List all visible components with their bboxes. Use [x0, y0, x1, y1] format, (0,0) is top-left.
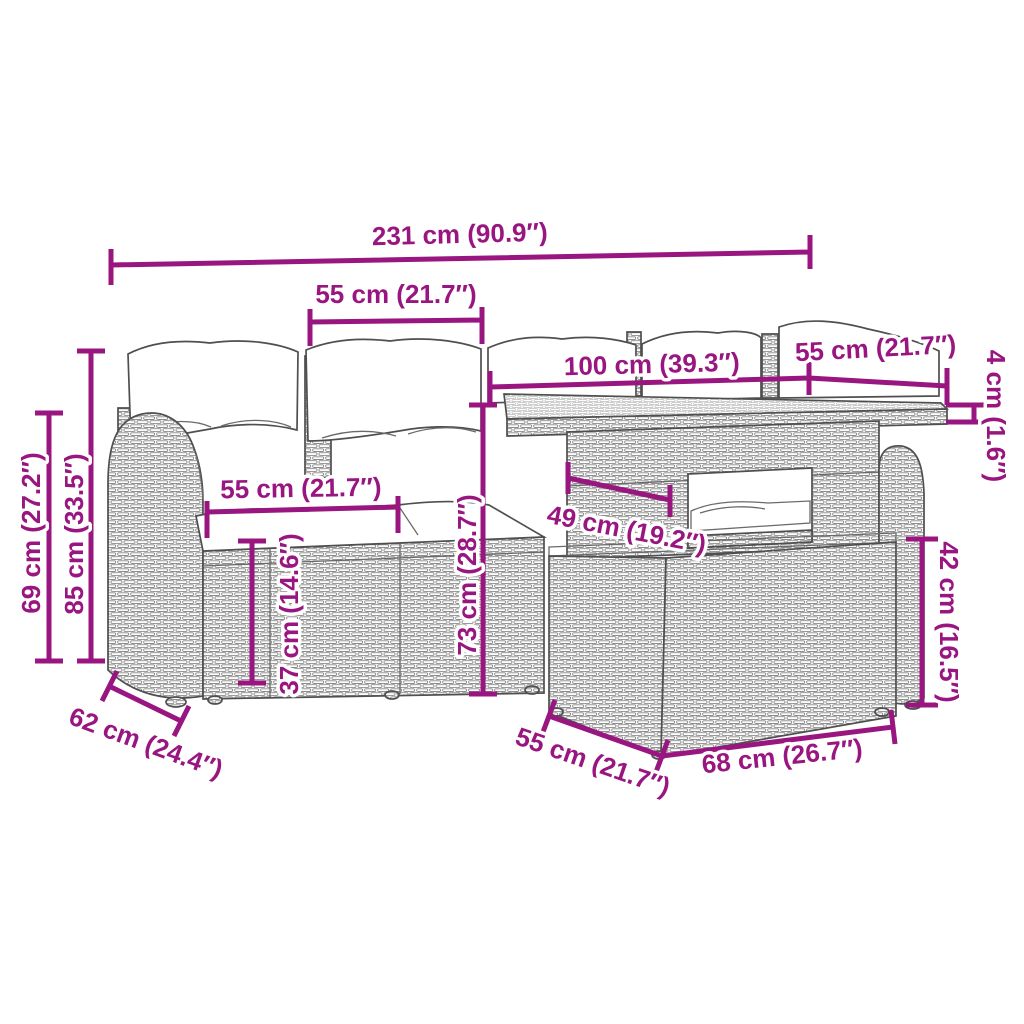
dim-table-top-thickness-label: 4 cm (1.6″) — [981, 350, 1011, 482]
dim-seat-width-label: 55 cm (21.7″) — [220, 472, 382, 505]
furniture-foot — [385, 691, 399, 699]
dim-back-height-label: 85 cm (33.5″) — [59, 453, 89, 614]
left-armrest — [108, 413, 203, 707]
dim-seat-height-label: 37 cm (14.6″) — [274, 533, 304, 694]
back-cushion — [306, 339, 481, 441]
dimension-diagram-page: 231 cm (90.9″) 55 cm (21.7″) 100 cm (39.… — [0, 0, 1024, 1024]
dim-ottoman-height-label: 42 cm (16.5″) — [934, 541, 964, 702]
dim-armrest-height: 69 cm (27.2″) — [16, 413, 63, 661]
ottoman — [549, 533, 896, 759]
dim-table-height-label: 73 cm (28.7″) — [452, 494, 482, 655]
dim-backrest-section-width: 55 cm (21.7″) — [310, 279, 482, 346]
furniture-foot — [525, 686, 539, 694]
dim-backrest-section-width-label: 55 cm (21.7″) — [315, 279, 476, 309]
furniture-foot — [875, 708, 889, 716]
dim-armrest-height-label: 69 cm (27.2″) — [16, 452, 46, 613]
dim-overall-width: 231 cm (90.9″) — [111, 217, 810, 285]
dim-back-height: 85 cm (33.5″) — [59, 351, 105, 661]
dim-table-top-length-label: 100 cm (39.3″) — [564, 347, 741, 382]
furniture-foot — [208, 696, 222, 704]
dim-overall-width-label: 231 cm (90.9″) — [372, 217, 549, 252]
dim-armrest-depth-label: 62 cm (24.4″) — [65, 701, 227, 784]
furniture-foot — [166, 697, 186, 707]
backrest-post — [762, 334, 778, 398]
dim-table-top-thickness: 4 cm (1.6″) — [946, 350, 1011, 482]
furniture-dimension-diagram: 231 cm (90.9″) 55 cm (21.7″) 100 cm (39.… — [0, 0, 1024, 1024]
